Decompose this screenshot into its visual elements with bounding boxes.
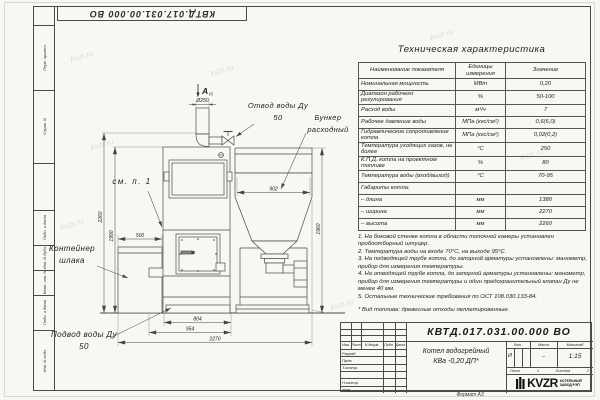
boiler-base [166,305,230,313]
row-prov: Пров. [342,358,353,363]
format-note: Формат А3 [440,392,500,398]
drawing-sheet: kvzr.ru kvzr.ru kvzr.ru kvzr.ru kvzr.ru … [0,0,600,400]
table-row: Расход водым³/ч7 [359,104,586,116]
table-row: Температура воды (вход/выход)°С70-95 [359,170,586,182]
logo-caption-2: ЗАВОД РЭП [560,383,582,387]
massa-header: Масса [530,343,557,347]
col-podp: Подп. [383,343,395,347]
screw-tube [283,265,295,273]
col-name: Наименование показателя [359,63,456,79]
table-row: Номинальная мощностьМВт0,20 [359,79,586,91]
bunker-hopper [235,173,312,241]
col-izm: Изм. [341,343,351,347]
view-label: A [201,86,208,96]
technical-notes: 1. На боковой стенке котла в области топ… [358,234,589,314]
sheet-counter: Лист 1 Листов 2 [506,367,593,374]
lit-value: И [506,353,514,359]
col-ndokum: N докум. [361,343,383,347]
feeder-motor [294,261,307,287]
chimney-elbow [196,134,209,147]
logo-text: KVZR [527,376,558,390]
table-row: – длинамм1380 [359,194,586,206]
door-handle [181,251,192,254]
view-sub: (2) [209,92,213,96]
row-nkontr: Н.контр. [342,380,359,385]
outlet-pipe [209,137,222,144]
table-row: К.П.Д. котла на проектном топливе%80 [359,156,586,170]
label-slag-container: Контейнер шлака [40,243,104,268]
table-row: Диапазон рабочего регулирования%50-100 [359,91,586,105]
col-units: Единицы измерения [456,63,506,79]
door-hinge-left [164,172,169,181]
lit-header: Лит. [506,343,530,347]
bunker-top [235,148,312,173]
label-fuel-bunker: Бункер расходный [301,112,355,135]
table-row: – ширинамм2270 [359,206,586,218]
fuel-note: * Вид топлива: древесные отходы пеллетир… [358,307,589,314]
note-1: 1. На боковой стенке котла в области топ… [358,234,589,249]
label-water-inlet: Подвод воды Ду 50 [50,329,118,354]
product-name-line2: КВа -0,20 ДП* [407,358,505,365]
row-utv: Утв. [342,387,351,392]
dim-1960: 1960 [316,223,322,234]
dim-2260: 2260 [98,211,104,223]
note-4: 4. На отводящей трубе котла, до запорной… [358,271,589,293]
manufacturer-logo: KVZR КОТЕЛЬНЫЙ ЗАВОД РЭП [506,374,592,392]
col-value: Значение [506,63,586,79]
dim-2270: 2270 [208,337,220,343]
upper-door [169,160,227,198]
table-row: Габариты котла: [359,182,586,194]
list-value: 1 [537,368,539,373]
chimney [196,108,209,134]
outlet-valve [222,136,228,145]
table-row: Температура уходящих газов, не более°С25… [359,142,586,156]
table-row: Гидравлическое сопротивление котлаМПа (к… [359,128,586,142]
title-block: КВТД.017.031.00.000 ВО Изм. Лист N докум… [340,322,592,392]
note-3: 3. На подводящей трубе котла, до запорно… [358,256,589,271]
dim-954: 954 [186,327,195,333]
title-doc-number: КВТД.017.031.00.000 ВО [406,324,592,340]
label-see-note-1: см. п. 1 [106,176,158,188]
door-latch [216,263,225,271]
product-name-line1: Котел водогрейный [407,348,505,355]
masshtab-value: 1:15 [557,353,593,360]
slag-container [118,247,162,313]
table-row: Рабочее давление водыМПа (кгс/см²)0,6(6,… [359,116,586,128]
masshtab-header: Масштаб [557,343,593,347]
tech-table-header: Наименование показателя Единицы измерени… [359,63,586,79]
logo-icon [516,377,525,389]
dim-500: 500 [136,233,145,239]
dim-250: Ø250 [195,98,208,104]
massa-value: – [530,354,557,360]
tech-table-title: Техническая характеристика [358,44,585,55]
dim-902: 902 [269,187,278,193]
row-razrab: Разраб. [342,351,356,356]
feeder-box [266,263,283,273]
listov-label: Листов [556,368,571,373]
view-arrow-A: A (2) [196,84,213,98]
hopper-funnel [252,241,297,254]
table-row: – высотамм2260 [359,218,586,230]
door-hinge-right [227,172,232,181]
list-label: Лист [510,368,520,373]
listov-value: 2 [587,368,589,373]
dim-1990: 1990 [109,230,115,241]
tech-table: Наименование показателя Единицы измерени… [358,62,586,231]
col-data: Дата [395,343,406,347]
dim-804: 804 [193,317,202,323]
row-tkontr: Т.контр. [342,365,358,370]
col-list: Лист [351,343,361,347]
slag-chute [149,268,164,277]
note-5: 5. Остальные технические требования по О… [358,294,589,301]
